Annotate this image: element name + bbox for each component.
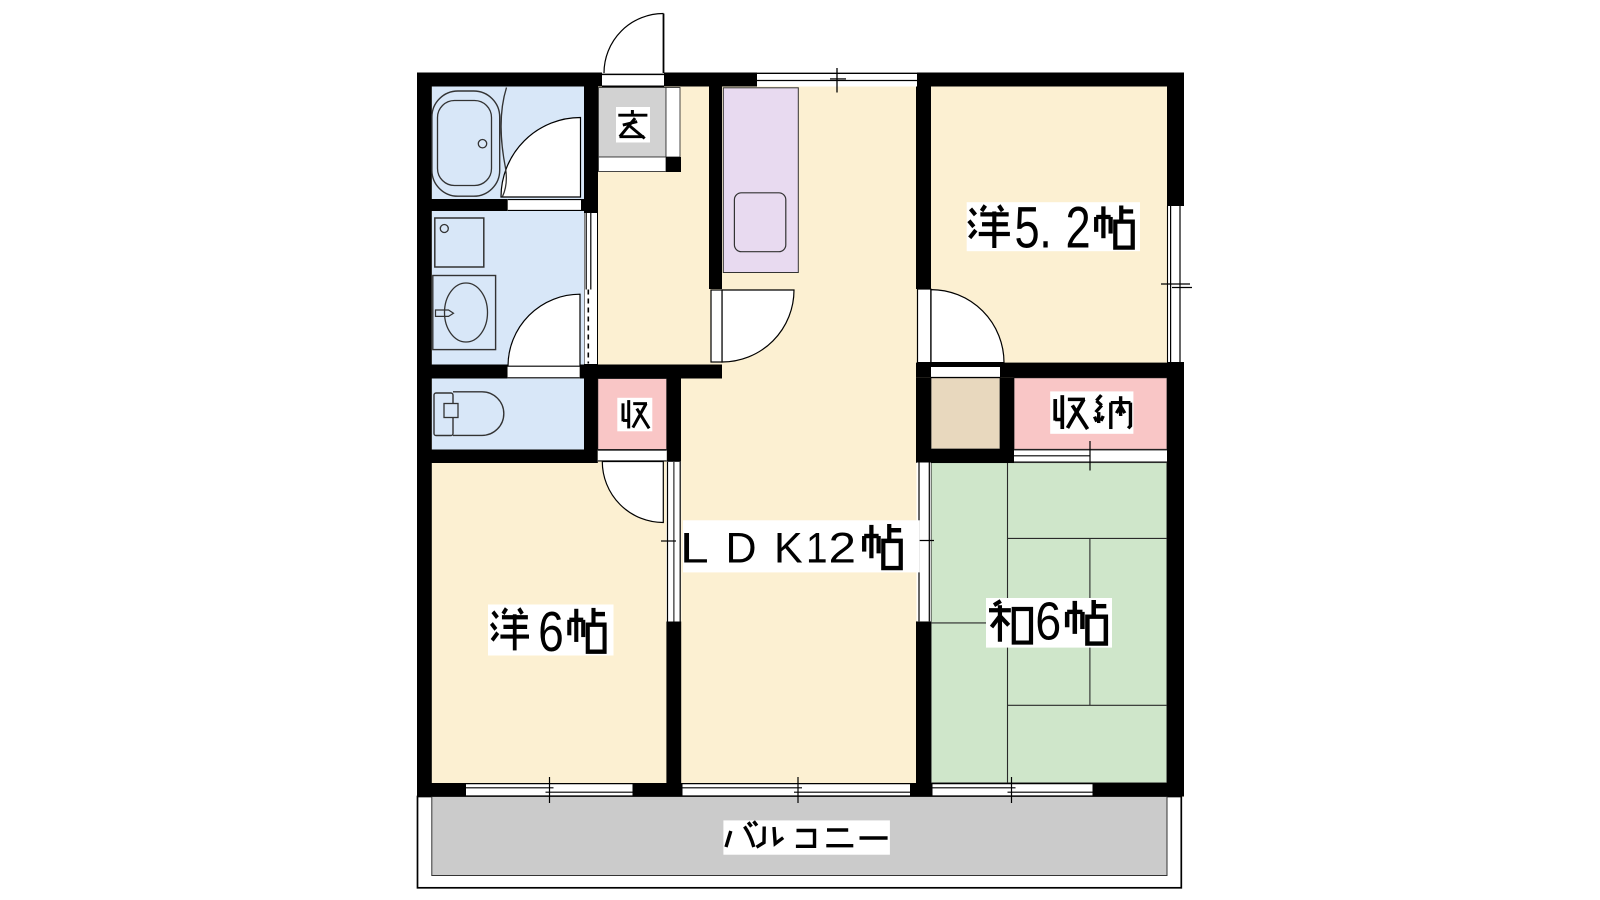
svg-text:.: . <box>1039 196 1052 261</box>
svg-text:2: 2 <box>829 523 856 571</box>
svg-text:D: D <box>726 524 757 572</box>
svg-text:6: 6 <box>538 600 564 664</box>
svg-text:5: 5 <box>1015 196 1040 261</box>
svg-text:1: 1 <box>806 524 828 572</box>
svg-text:6: 6 <box>1035 590 1061 651</box>
svg-text:L: L <box>680 524 709 572</box>
svg-text:2: 2 <box>1066 196 1091 261</box>
svg-text:K: K <box>774 524 803 572</box>
